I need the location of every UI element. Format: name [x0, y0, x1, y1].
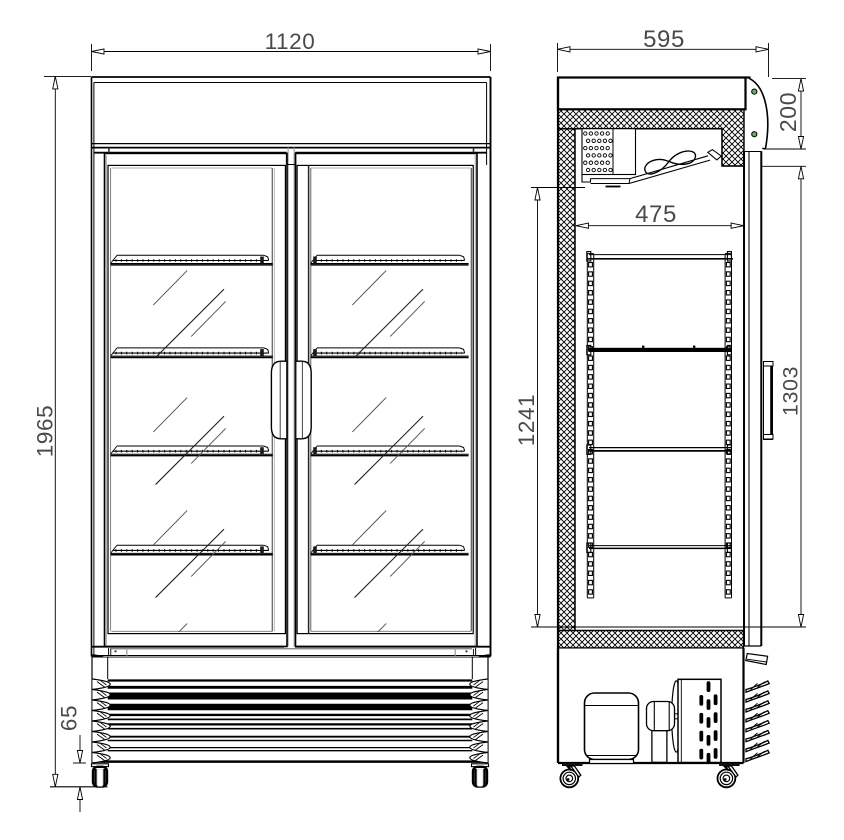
svg-text:200: 200	[775, 92, 801, 132]
svg-text:595: 595	[643, 26, 685, 53]
svg-text:65: 65	[57, 705, 82, 731]
svg-text:1241: 1241	[514, 394, 539, 446]
svg-text:1965: 1965	[33, 405, 58, 457]
svg-text:1120: 1120	[265, 29, 316, 54]
svg-text:475: 475	[635, 201, 677, 228]
svg-text:1303: 1303	[779, 366, 803, 416]
